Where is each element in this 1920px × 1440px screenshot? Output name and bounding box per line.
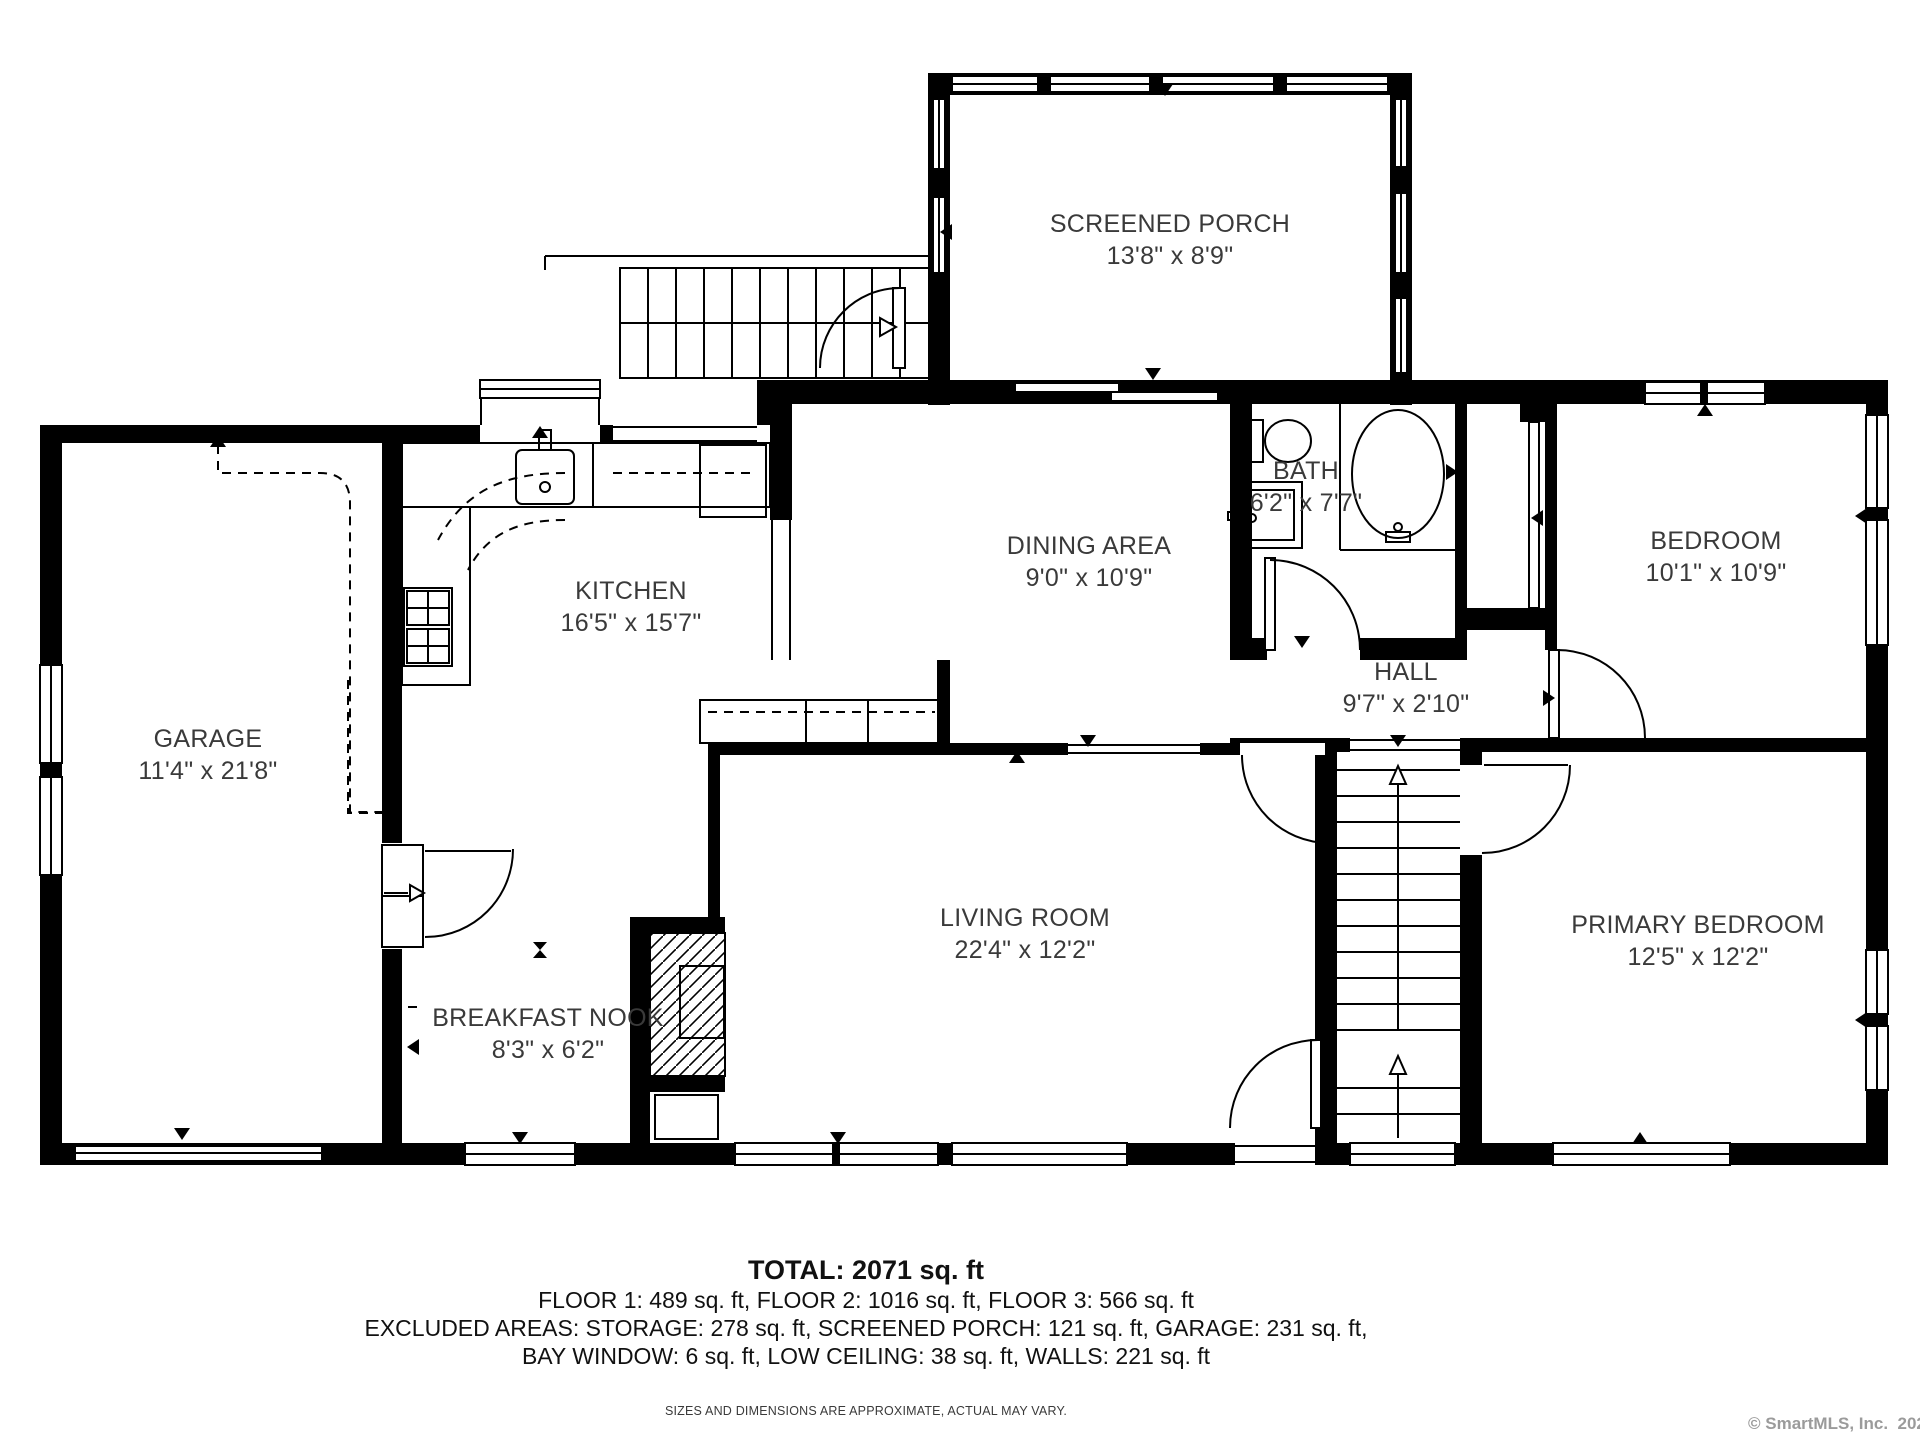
room-label-primary-bedroom: PRIMARY BEDROOM 12'5" x 12'2"	[1571, 909, 1825, 973]
excluded-areas-text-1: EXCLUDED AREAS: STORAGE: 278 sq. ft, SCR…	[146, 1314, 1586, 1342]
excluded-areas-text-2: BAY WINDOW: 6 sq. ft, LOW CEILING: 38 sq…	[146, 1342, 1586, 1370]
room-dims: 9'7" x 2'10"	[1343, 688, 1470, 720]
stairs-up-arrow	[1390, 766, 1406, 784]
peninsula-counter	[700, 700, 948, 743]
room-label-screened-porch: SCREENED PORCH 13'8" x 8'9"	[1050, 208, 1290, 272]
room-dims: 13'8" x 8'9"	[1050, 240, 1290, 272]
room-dims: 6'2" x 7'7"	[1250, 487, 1363, 519]
windows	[40, 380, 1888, 1165]
stairs-lower-arrow	[1390, 1056, 1406, 1074]
room-label-living-room: LIVING ROOM 22'4" x 12'2"	[940, 902, 1110, 966]
room-dims: 16'5" x 15'7"	[560, 607, 701, 639]
room-name: BEDROOM	[1645, 525, 1786, 557]
room-label-bedroom: BEDROOM 10'1" x 10'9"	[1645, 525, 1786, 589]
smartmls-watermark: © SmartMLS, Inc. 2025	[1748, 1414, 1920, 1434]
interior-stairs	[382, 766, 1460, 1138]
room-label-hall: HALL 9'7" x 2'10"	[1343, 656, 1470, 720]
exterior-walls	[40, 380, 1888, 1165]
total-area-text: TOTAL: 2071 sq. ft	[146, 1254, 1586, 1286]
floor-plan-drawing	[0, 0, 1920, 1440]
room-name: GARAGE	[138, 723, 277, 755]
room-dims: 22'4" x 12'2"	[940, 934, 1110, 966]
room-name: DINING AREA	[1007, 530, 1171, 562]
sliding-door	[1015, 383, 1119, 392]
room-name: LIVING ROOM	[940, 902, 1110, 934]
room-name: SCREENED PORCH	[1050, 208, 1290, 240]
room-name: KITCHEN	[560, 575, 701, 607]
sliding-door	[1111, 392, 1218, 401]
room-dims: 10'1" x 10'9"	[1645, 557, 1786, 589]
room-label-dining-area: DINING AREA 9'0" x 10'9"	[1007, 530, 1171, 594]
disclaimer-text: SIZES AND DIMENSIONS ARE APPROXIMATE, AC…	[146, 1404, 1586, 1418]
bath-door-leaf	[1265, 558, 1275, 650]
room-dims: 9'0" x 10'9"	[1007, 562, 1171, 594]
hearth-closet	[655, 1095, 718, 1139]
room-name: HALL	[1343, 656, 1470, 688]
back-door-leaf	[1311, 1040, 1321, 1128]
room-label-garage: GARAGE 11'4" x 21'8"	[138, 723, 277, 787]
room-name: PRIMARY BEDROOM	[1571, 909, 1825, 941]
bedroom-door-leaf	[1549, 650, 1559, 738]
exterior-stairs	[545, 256, 930, 378]
room-label-kitchen: KITCHEN 16'5" x 15'7"	[560, 575, 701, 639]
room-name: BATH	[1250, 455, 1363, 487]
room-dims: 11'4" x 21'8"	[138, 755, 277, 787]
room-dims: 12'5" x 12'2"	[1571, 941, 1825, 973]
floor-plan: SCREENED PORCH 13'8" x 8'9" KITCHEN 16'5…	[0, 0, 1920, 1440]
area-summary: TOTAL: 2071 sq. ft FLOOR 1: 489 sq. ft, …	[146, 1254, 1586, 1370]
bathtub	[1352, 410, 1444, 538]
room-label-breakfast-nook: BREAKFAST NOOK 8'3" x 6'2"	[432, 1002, 664, 1066]
floor-areas-text: FLOOR 1: 489 sq. ft, FLOOR 2: 1016 sq. f…	[146, 1286, 1586, 1314]
room-dims: 8'3" x 6'2"	[432, 1034, 664, 1066]
room-label-bath: BATH 6'2" x 7'7"	[1250, 455, 1363, 519]
kitchen-counter	[402, 443, 770, 507]
room-name: BREAKFAST NOOK	[432, 1002, 664, 1034]
